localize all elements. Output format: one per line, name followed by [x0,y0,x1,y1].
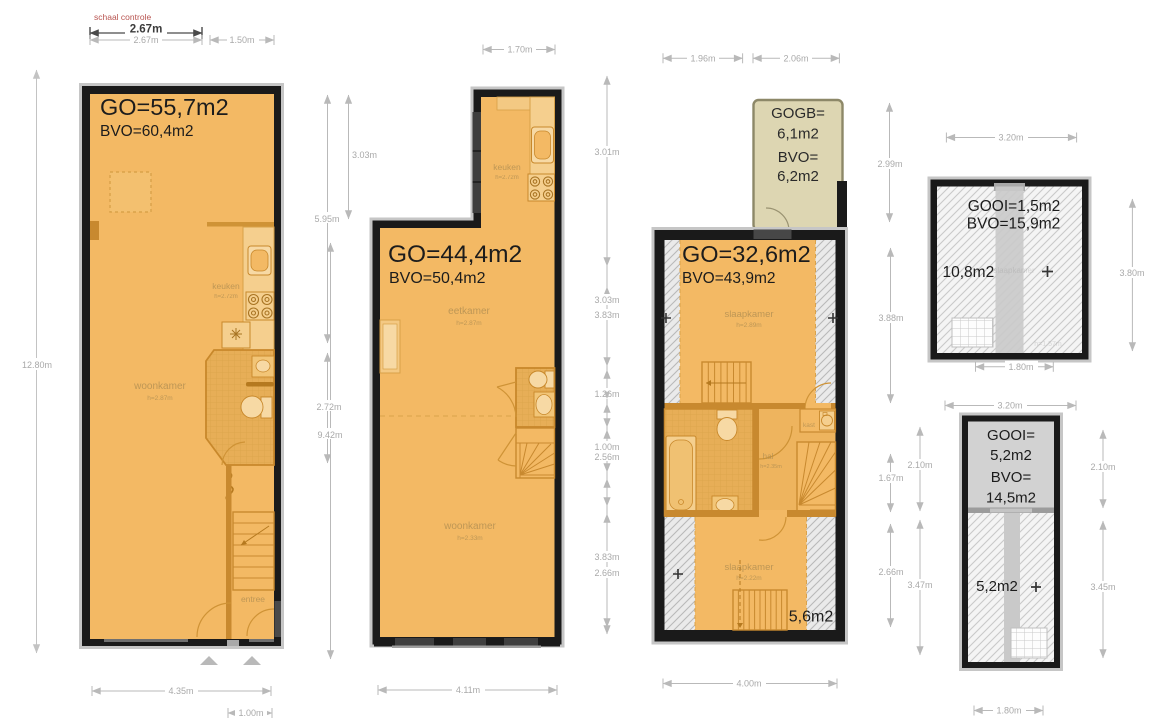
svg-text:5,2m2: 5,2m2 [990,447,1032,464]
svg-text:h=1.57m: h=1.57m [1034,341,1062,348]
svg-text:slaapkamer: slaapkamer [724,309,773,320]
svg-text:3.83m: 3.83m [594,552,619,562]
svg-text:h=2.87m: h=2.87m [147,395,172,402]
svg-text:kast: kast [803,422,815,429]
svg-text:2.72m: 2.72m [316,402,341,412]
svg-text:3.03m: 3.03m [594,295,619,305]
svg-text:GOOI=: GOOI= [987,427,1035,444]
svg-text:GO=55,7m2: GO=55,7m2 [100,94,229,120]
svg-text:2.10m: 2.10m [1090,462,1115,472]
svg-text:eetkamer: eetkamer [448,306,490,317]
svg-text:5,2m2: 5,2m2 [976,578,1018,595]
svg-text:3.01m: 3.01m [594,147,619,157]
svg-text:BVO=15,9m2: BVO=15,9m2 [967,216,1060,233]
svg-text:4.11m: 4.11m [456,685,480,695]
svg-text:9.42m: 9.42m [317,430,342,440]
svg-text:2.67m: 2.67m [133,35,158,45]
svg-text:3.20m: 3.20m [997,401,1022,411]
svg-text:woonkamer: woonkamer [133,381,186,392]
svg-text:BVO=50,4m2: BVO=50,4m2 [389,270,486,287]
svg-text:keuken: keuken [493,162,521,172]
svg-text:1.80m: 1.80m [1008,362,1033,372]
svg-text:keuken: keuken [212,281,240,291]
svg-text:6,1m2: 6,1m2 [777,126,819,143]
svg-text:2.66m: 2.66m [878,567,903,577]
svg-text:h=2.72m: h=2.72m [214,294,238,300]
svg-text:entree: entree [241,594,265,604]
svg-text:14,5m2: 14,5m2 [986,490,1036,507]
svg-text:2.66m: 2.66m [594,568,619,578]
svg-text:schaal controle: schaal controle [94,12,151,22]
svg-text:3.83m: 3.83m [594,310,619,320]
svg-text:h=2.35m: h=2.35m [760,464,782,470]
svg-text:5,6m2: 5,6m2 [789,609,834,626]
svg-text:3.45m: 3.45m [1090,582,1115,592]
svg-text:10,8m2: 10,8m2 [943,264,995,281]
svg-text:4.35m: 4.35m [168,686,193,696]
svg-text:4.00m: 4.00m [736,679,761,689]
svg-text:BVO=: BVO= [778,149,819,166]
svg-text:BVO=60,4m2: BVO=60,4m2 [100,123,193,140]
svg-text:3.03m: 3.03m [352,150,377,160]
svg-text:BVO=43,9m2: BVO=43,9m2 [682,270,775,287]
svg-text:GO=32,6m2: GO=32,6m2 [682,241,811,267]
svg-text:1.96m: 1.96m [690,53,715,63]
svg-text:1.00m: 1.00m [238,708,263,718]
svg-text:GOOI=1,5m2: GOOI=1,5m2 [968,198,1061,215]
svg-text:2.10m: 2.10m [907,460,932,470]
svg-text:h=2.33m: h=2.33m [457,535,482,542]
svg-text:2.99m: 2.99m [877,159,902,169]
svg-text:3.20m: 3.20m [998,133,1023,143]
svg-text:hal: hal [763,452,774,461]
svg-text:slaapkamer: slaapkamer [993,266,1035,275]
svg-text:3.80m: 3.80m [1119,268,1144,278]
svg-text:GOGB=: GOGB= [771,105,825,122]
svg-text:5.95m: 5.95m [314,214,339,224]
svg-text:2.06m: 2.06m [783,53,808,63]
svg-text:woonkamer: woonkamer [443,521,496,532]
svg-text:1.00m: 1.00m [594,442,619,452]
svg-text:1.67m: 1.67m [878,473,903,483]
svg-text:GO=44,4m2: GO=44,4m2 [388,241,522,268]
svg-text:h=2.87m: h=2.87m [456,320,481,327]
svg-text:slaapkamer: slaapkamer [724,562,773,573]
svg-text:h=2.72m: h=2.72m [495,175,519,181]
svg-text:12.80m: 12.80m [22,360,52,370]
svg-text:1.50m: 1.50m [229,35,254,45]
svg-text:6,2m2: 6,2m2 [777,168,819,185]
svg-text:BVO=: BVO= [991,469,1032,486]
svg-text:3.47m: 3.47m [907,580,932,590]
svg-text:2.56m: 2.56m [594,452,619,462]
svg-text:1.80m: 1.80m [996,706,1021,716]
svg-text:1.70m: 1.70m [507,45,532,55]
svg-text:2.67m: 2.67m [130,24,163,36]
svg-text:3.88m: 3.88m [878,313,903,323]
svg-text:h=2.89m: h=2.89m [736,322,761,329]
